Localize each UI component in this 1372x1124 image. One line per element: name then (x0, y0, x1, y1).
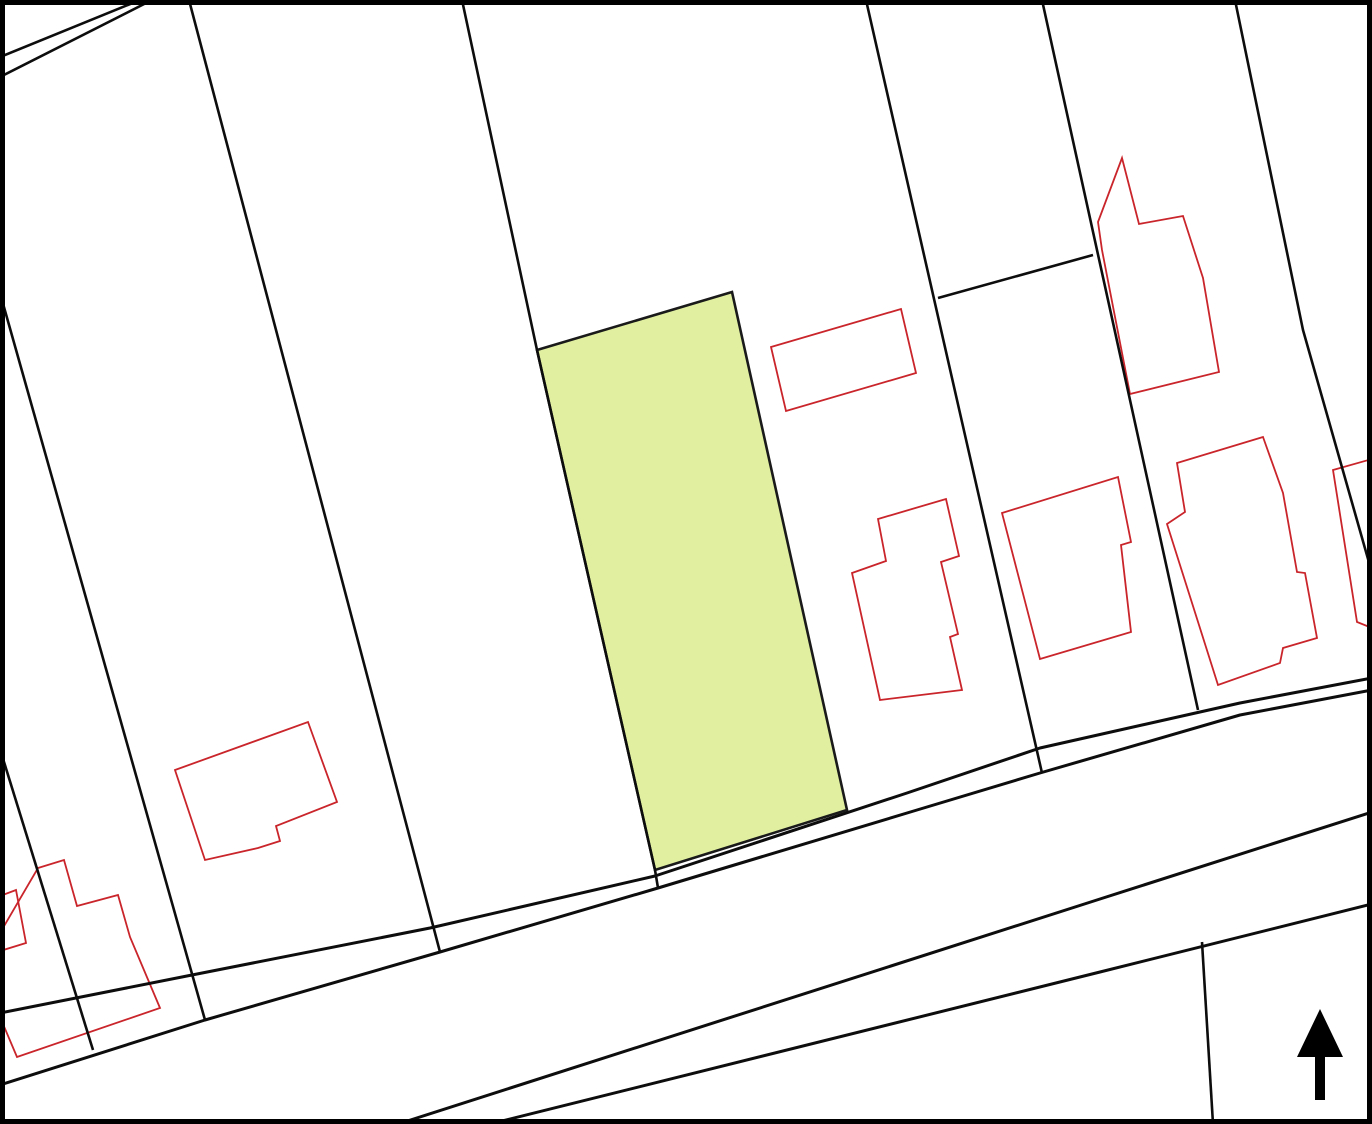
site-plan-svg (0, 0, 1372, 1124)
site-plan-map (0, 0, 1372, 1124)
north-arrow-stem (1315, 1053, 1325, 1100)
